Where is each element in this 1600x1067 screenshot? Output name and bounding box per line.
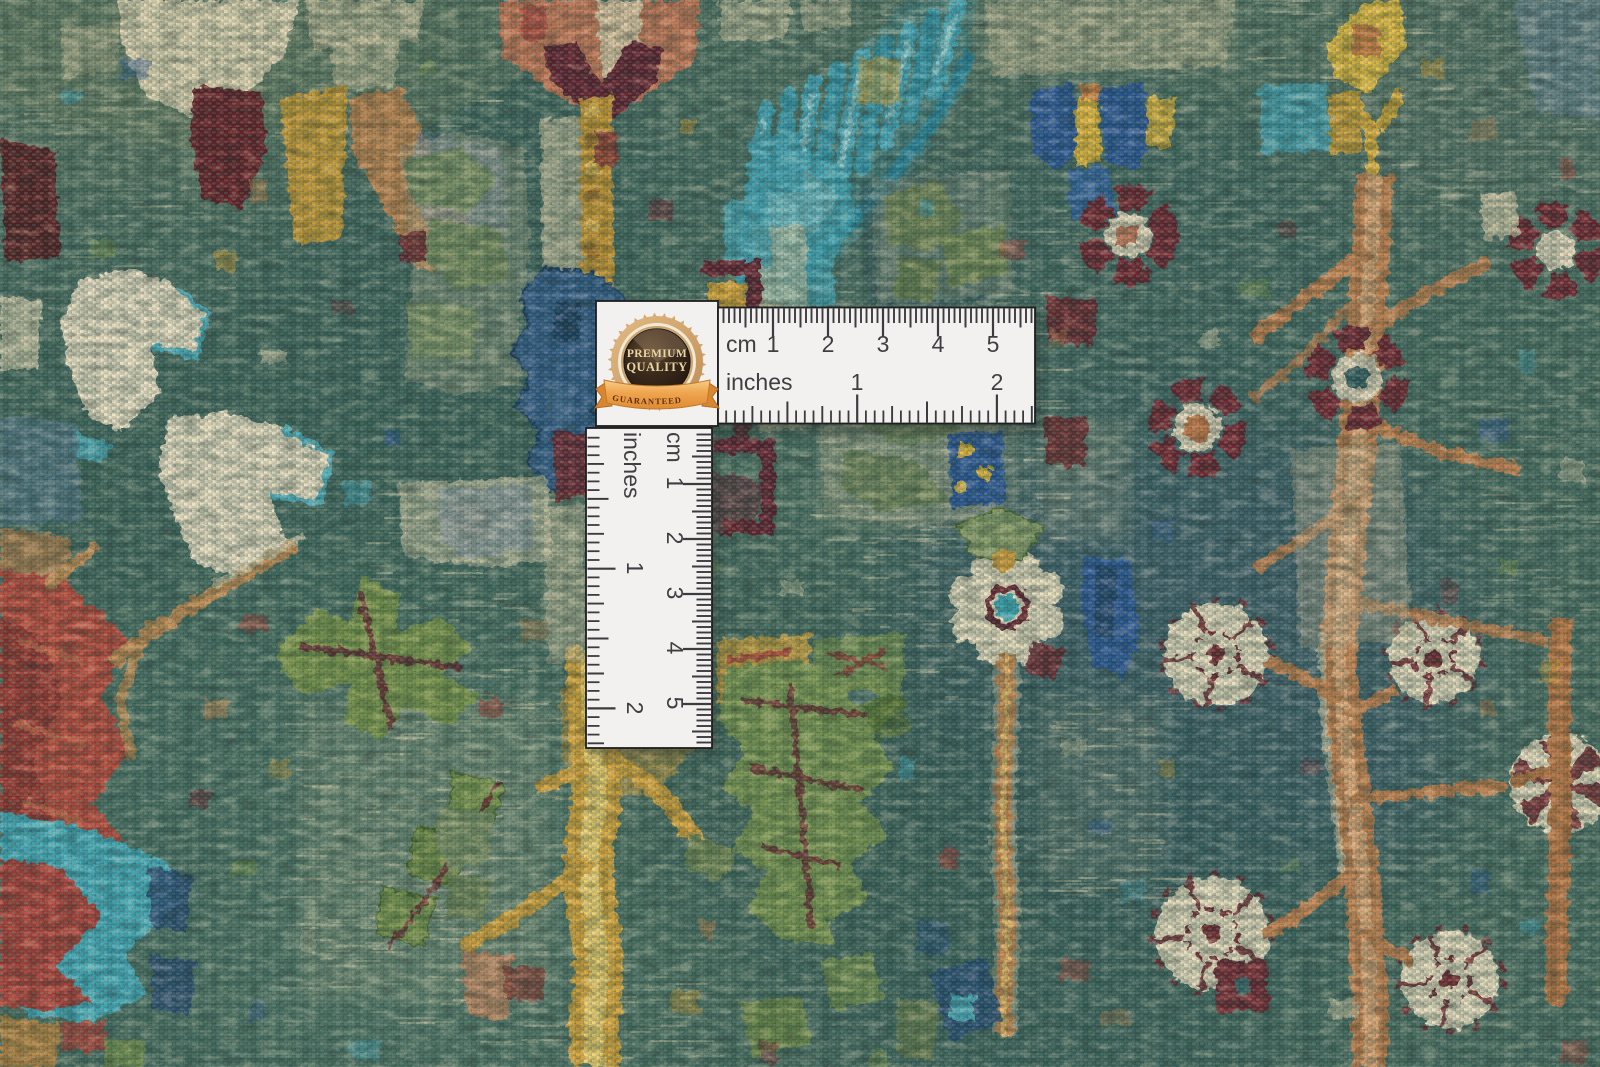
svg-text:1: 1 <box>622 562 648 575</box>
svg-text:1: 1 <box>851 369 864 395</box>
svg-text:4: 4 <box>662 642 688 655</box>
svg-text:2: 2 <box>662 532 688 545</box>
svg-text:cm: cm <box>662 432 688 463</box>
svg-text:PREMIUM: PREMIUM <box>627 348 687 360</box>
svg-text:3: 3 <box>662 587 688 600</box>
svg-text:5: 5 <box>662 697 688 710</box>
svg-text:3: 3 <box>877 331 890 357</box>
svg-text:5: 5 <box>987 331 1000 357</box>
svg-text:2: 2 <box>622 702 648 715</box>
svg-text:4: 4 <box>932 331 945 357</box>
svg-text:2: 2 <box>991 369 1004 395</box>
svg-text:2: 2 <box>822 331 835 357</box>
svg-text:QUALITY: QUALITY <box>626 360 687 374</box>
svg-text:inches: inches <box>726 369 792 395</box>
svg-text:1: 1 <box>767 331 780 357</box>
svg-text:inches: inches <box>619 432 645 498</box>
svg-text:1: 1 <box>662 477 688 490</box>
svg-text:cm: cm <box>726 331 757 357</box>
